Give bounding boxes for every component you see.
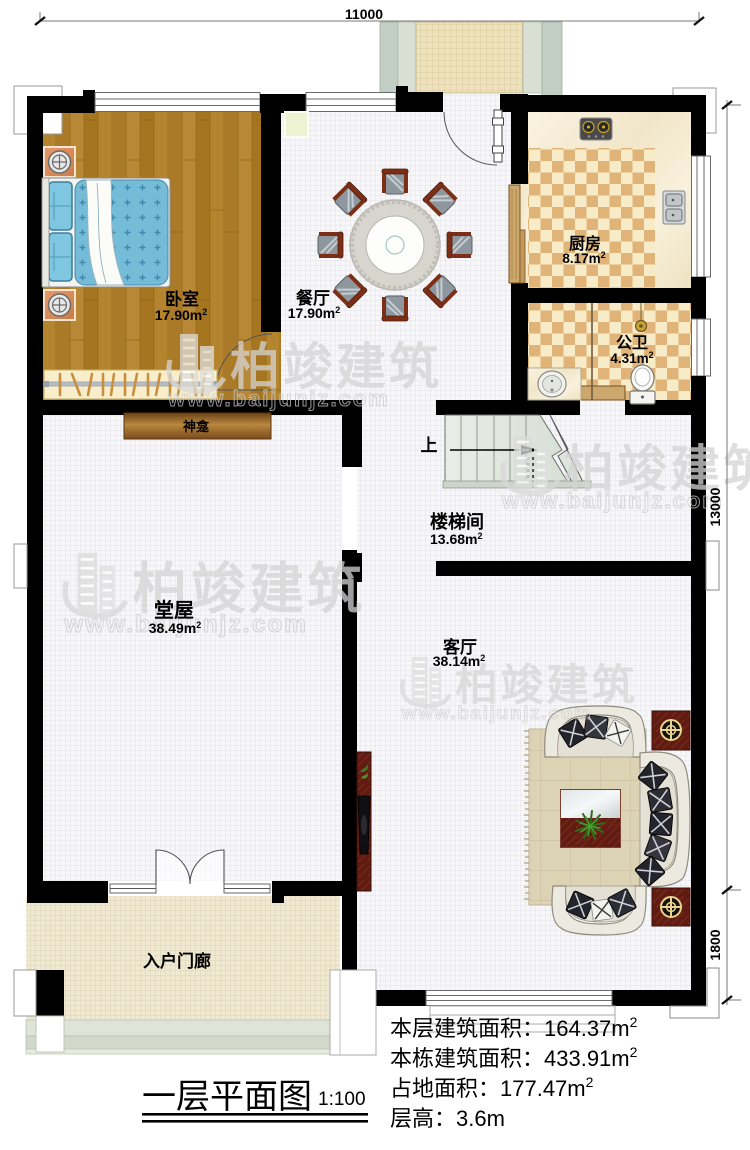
- svg-text:1800: 1800: [707, 929, 723, 960]
- svg-text:占地面积：177.47m2: 占地面积：177.47m2: [390, 1074, 594, 1101]
- svg-text:上: 上: [421, 436, 438, 455]
- svg-text:13.68m2: 13.68m2: [430, 531, 483, 547]
- svg-text:17.90m2: 17.90m2: [288, 305, 341, 321]
- svg-text:楼梯间: 楼梯间: [430, 511, 484, 532]
- svg-text:13000: 13000: [707, 487, 723, 526]
- svg-text:公卫: 公卫: [616, 334, 648, 352]
- svg-text:11000: 11000: [345, 6, 383, 22]
- svg-text:17.90m2: 17.90m2: [155, 307, 208, 323]
- svg-text:层高：3.6m: 层高：3.6m: [390, 1106, 505, 1131]
- svg-text:38.14m2: 38.14m2: [433, 653, 486, 669]
- svg-text:1:100: 1:100: [318, 1089, 366, 1110]
- svg-text:一层平面图: 一层平面图: [142, 1078, 312, 1116]
- svg-text:堂屋: 堂屋: [154, 599, 194, 622]
- svg-text:卧室: 卧室: [165, 289, 199, 309]
- svg-text:本栋建筑面积：433.91m2: 本栋建筑面积：433.91m2: [390, 1044, 638, 1071]
- svg-text:本层建筑面积：164.37m2: 本层建筑面积：164.37m2: [390, 1014, 638, 1041]
- svg-text:8.17m2: 8.17m2: [562, 250, 605, 266]
- svg-text:4.31m2: 4.31m2: [610, 350, 653, 366]
- svg-text:38.49m2: 38.49m2: [149, 620, 202, 636]
- svg-text:神龛: 神龛: [183, 419, 210, 434]
- svg-text:入户门廊: 入户门廊: [143, 951, 211, 971]
